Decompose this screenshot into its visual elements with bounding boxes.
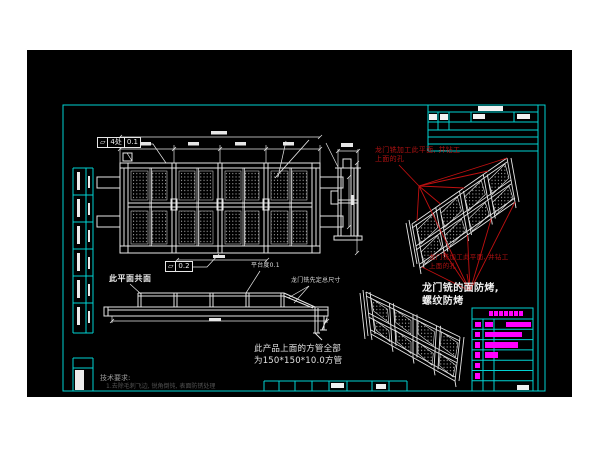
table-text-bar [485, 342, 518, 348]
table-text-bar [504, 311, 508, 316]
table-text-bar [514, 311, 518, 316]
gdt-flatness-frame-1: ▱ 4处 0.1 [97, 137, 141, 148]
gantry-overall-dim-label: 龙门铣先定总尺寸 [291, 277, 341, 284]
table-text-bar [489, 311, 493, 316]
red-note-mid-line1: 龙门铣加工此平面, 并钻工 [429, 253, 509, 262]
square-tube-note-line1: 此产品上面的方管全部 [254, 343, 342, 355]
table-text-bar [519, 311, 523, 316]
gdt-tolerance: 0.2 [176, 262, 191, 271]
red-note-top-line2: 上面的孔 [375, 155, 460, 164]
revision-strip-text-marks [75, 172, 90, 390]
table-text-bar [494, 311, 498, 316]
bake-protection-note: 龙门铣的面防烤, 螺纹防烤 [422, 282, 499, 308]
gdt-tolerance: 0.1 [125, 138, 140, 147]
red-note-top-line1: 龙门铣加工此平面, 并钻工 [375, 146, 460, 155]
table-text-bar [499, 311, 503, 316]
table-text-bar [475, 352, 480, 358]
red-note-top: 龙门铣加工此平面, 并钻工 上面的孔 [375, 146, 460, 164]
tech-requirements-item: 1.去除毛刺飞边, 锐角倒钝, 表面防锈处理 [106, 383, 215, 390]
table-text-bar [485, 332, 522, 338]
title-block-text-marks [429, 106, 530, 120]
square-tube-note: 此产品上面的方管全部 为150*150*10.0方管 [254, 343, 342, 367]
drawing-canvas[interactable]: ▱ 4处 0.1 ▱ 0.2 此平面共面 平台度0.1 龙门铣先定总尺寸 龙门铣… [27, 50, 572, 397]
bake-note-line1: 龙门铣的面防烤, [422, 282, 499, 295]
gdt-zone: 4处 [108, 138, 124, 147]
table-text-bar [475, 363, 480, 369]
table-text-bar [475, 342, 480, 348]
revision-strip [73, 168, 93, 391]
tech-requirements-title: 技术要求: [100, 374, 130, 382]
flatness-symbol-icon: ▱ [166, 262, 176, 271]
table-text-bar [475, 373, 480, 379]
table-text-bar [475, 332, 480, 338]
table-text-bar [509, 311, 513, 316]
gdt-flatness-frame-2: ▱ 0.2 [165, 261, 193, 272]
red-note-mid-line2: 上面的孔 [429, 262, 509, 271]
platform-flatness-label: 平台度0.1 [251, 262, 280, 269]
table-text-bar [475, 322, 481, 328]
table-text-bar [485, 322, 493, 328]
coplanar-label: 此平面共面 [109, 274, 152, 283]
table-text-bar [485, 352, 498, 358]
red-note-mid: 龙门铣加工此平面, 并钻工 上面的孔 [429, 253, 509, 270]
page: { "colors":{ "background":"#ffffff", "ca… [0, 0, 600, 450]
table-text-bar [506, 322, 531, 328]
flatness-symbol-icon: ▱ [98, 138, 108, 147]
bake-note-line2: 螺纹防烤 [422, 295, 499, 308]
square-tube-note-line2: 为150*150*10.0方管 [254, 355, 342, 367]
title-block [428, 105, 538, 151]
parts-table [472, 308, 533, 391]
